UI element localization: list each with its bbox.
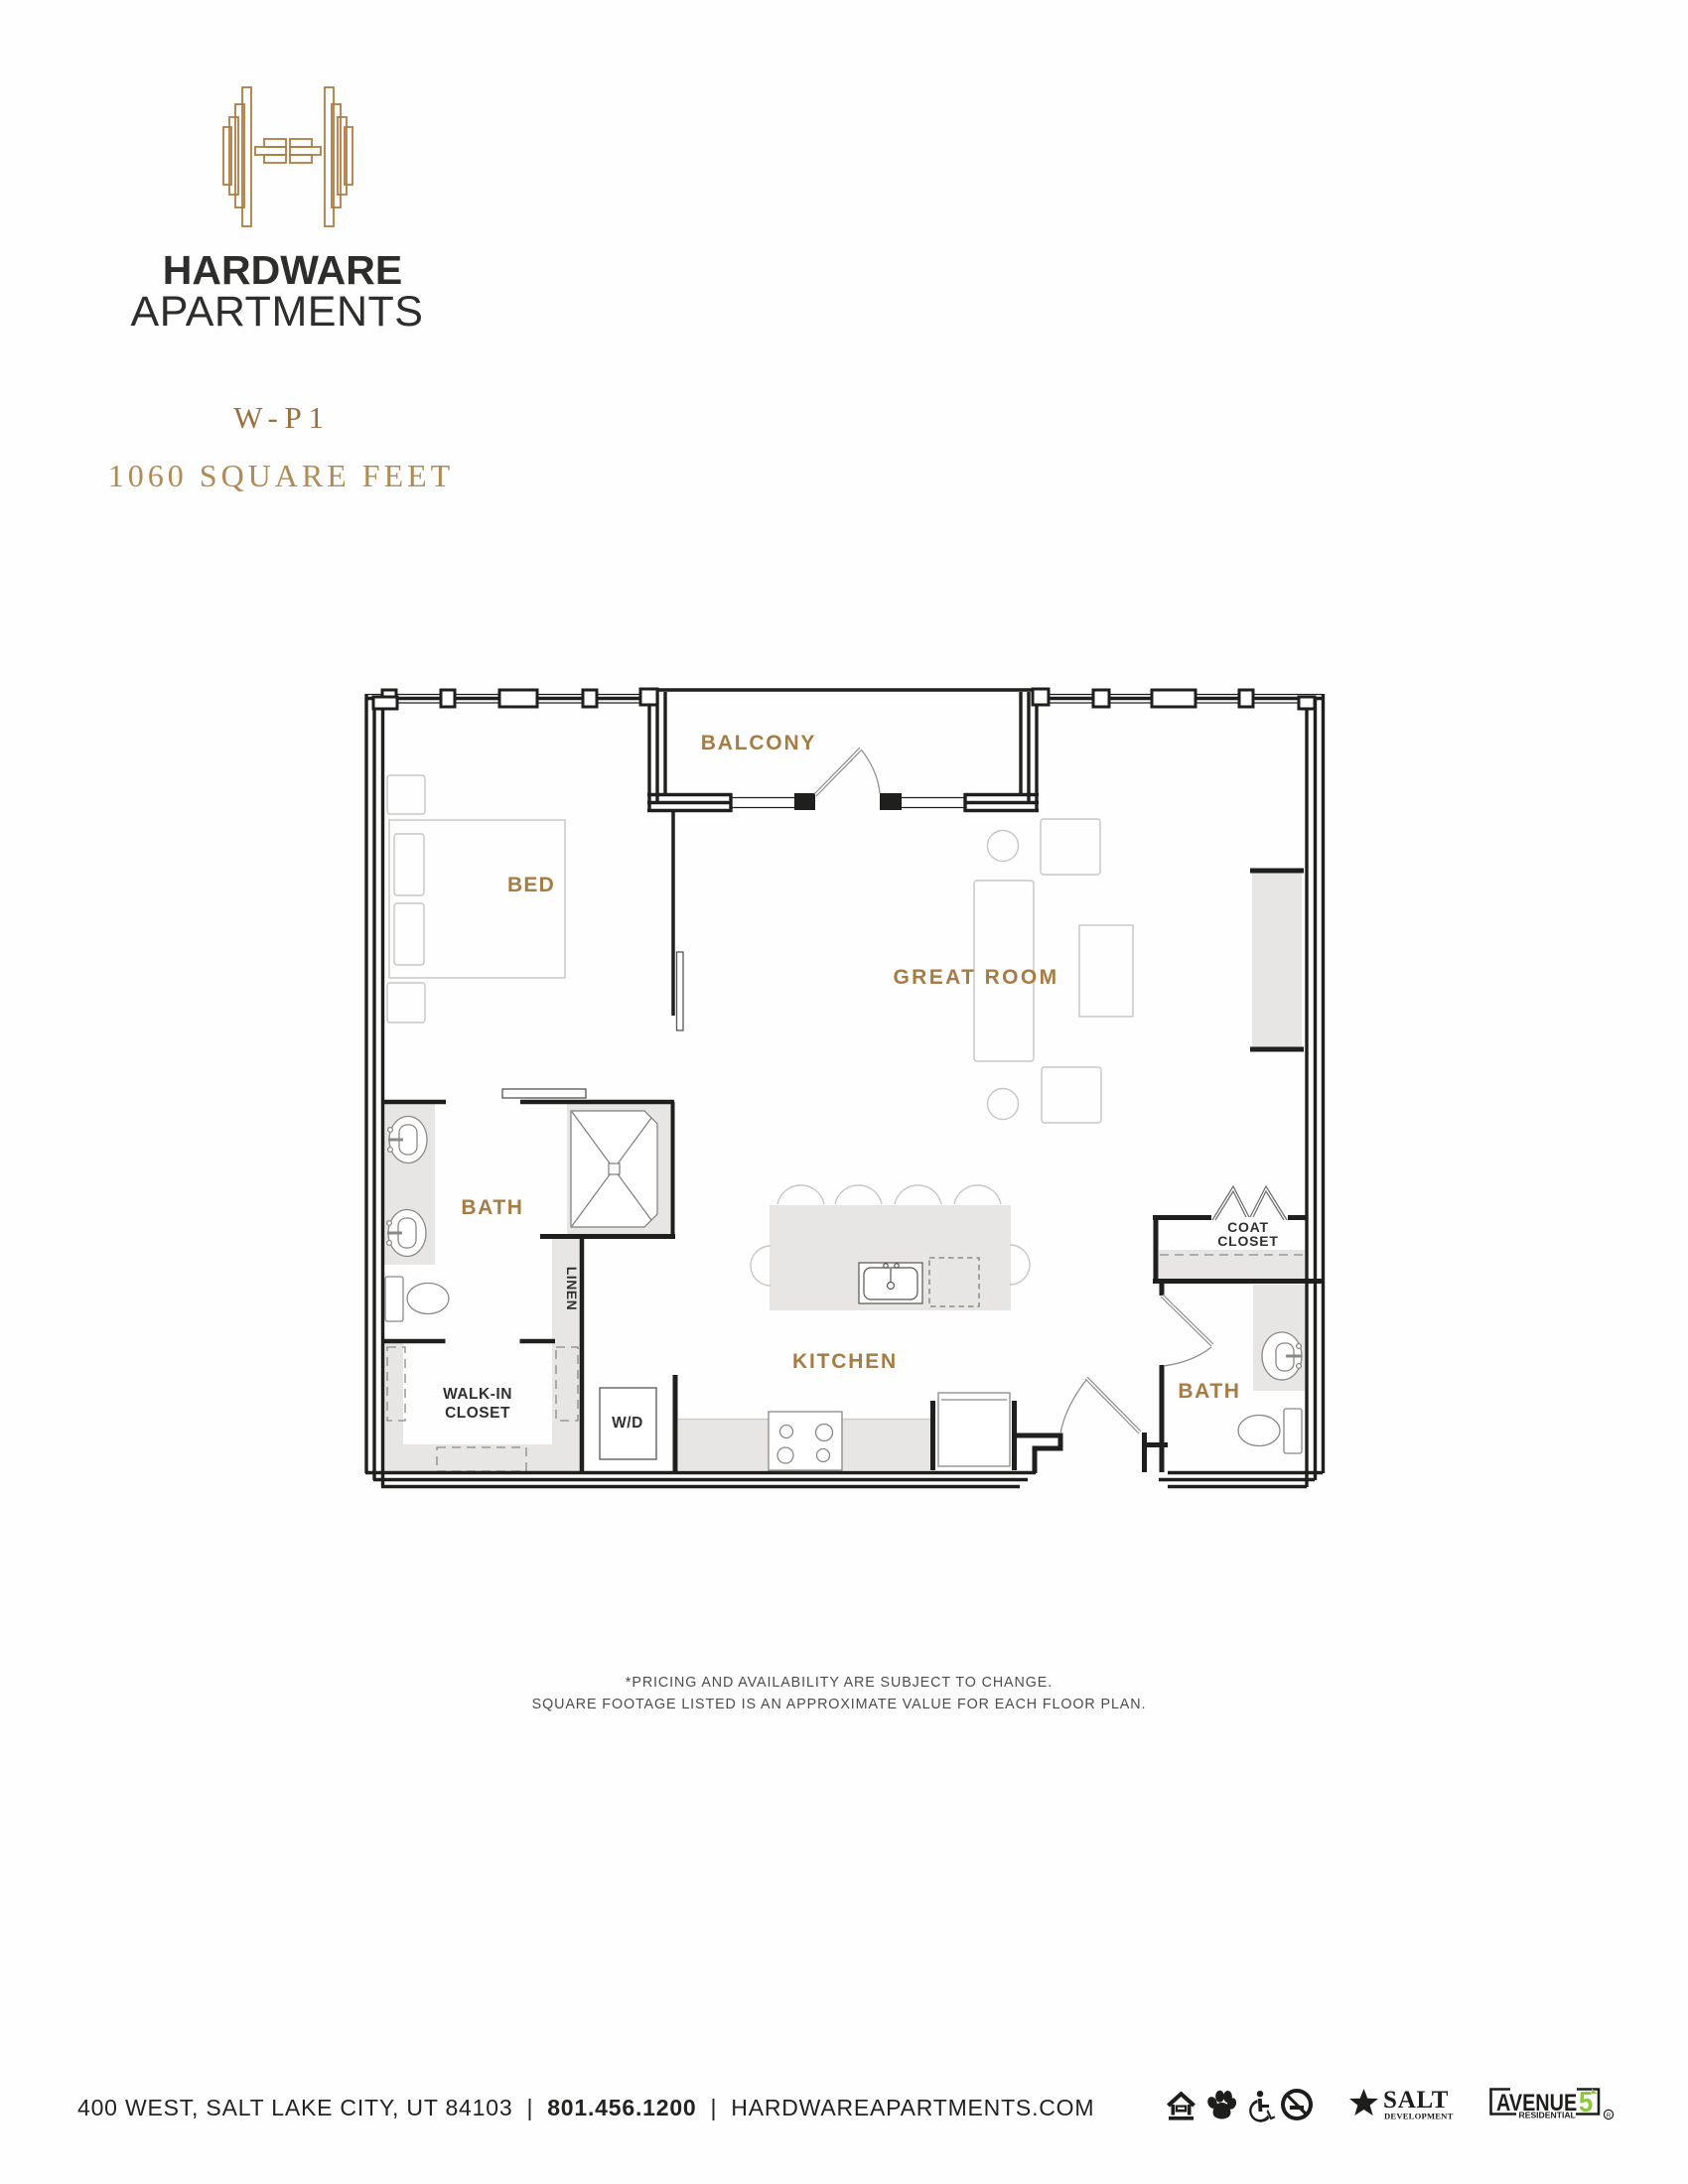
svg-text:LINEN: LINEN	[564, 1267, 580, 1311]
svg-text:CLOSET: CLOSET	[445, 1405, 510, 1422]
svg-text:BATH: BATH	[461, 1196, 523, 1219]
svg-text:BED: BED	[507, 874, 555, 896]
svg-text:CLOSET: CLOSET	[1217, 1233, 1279, 1249]
svg-text:R: R	[1607, 2113, 1612, 2119]
svg-text:*PRICING AND AVAILABILITY ARE: *PRICING AND AVAILABILITY ARE SUBJECT TO…	[626, 1675, 1053, 1691]
svg-text:W-P1: W-P1	[233, 400, 330, 435]
svg-text:BATH: BATH	[1178, 1380, 1240, 1403]
svg-text:1060 SQUARE FEET: 1060 SQUARE FEET	[108, 458, 454, 493]
svg-text:KITCHEN: KITCHEN	[792, 1350, 898, 1373]
svg-text:GREAT ROOM: GREAT ROOM	[893, 966, 1058, 989]
svg-text:400 WEST, SALT LAKE CITY, UT 8: 400 WEST, SALT LAKE CITY, UT 84103|801.4…	[77, 2095, 1094, 2120]
svg-text:SQUARE FOOTAGE LISTED IS AN AP: SQUARE FOOTAGE LISTED IS AN APPROXIMATE …	[532, 1697, 1147, 1712]
svg-text:5: 5	[1579, 2085, 1593, 2117]
svg-text:WALK-IN: WALK-IN	[443, 1386, 512, 1403]
svg-text:W/D: W/D	[612, 1415, 643, 1432]
svg-text:SALT: SALT	[1383, 2087, 1449, 2114]
svg-text:DEVELOPMENT: DEVELOPMENT	[1384, 2112, 1454, 2121]
svg-text:APARTMENTS: APARTMENTS	[131, 288, 424, 336]
svg-text:HARDWARE: HARDWARE	[163, 247, 402, 293]
svg-text:RESIDENTIAL: RESIDENTIAL	[1519, 2111, 1576, 2120]
svg-text:BALCONY: BALCONY	[701, 732, 816, 754]
